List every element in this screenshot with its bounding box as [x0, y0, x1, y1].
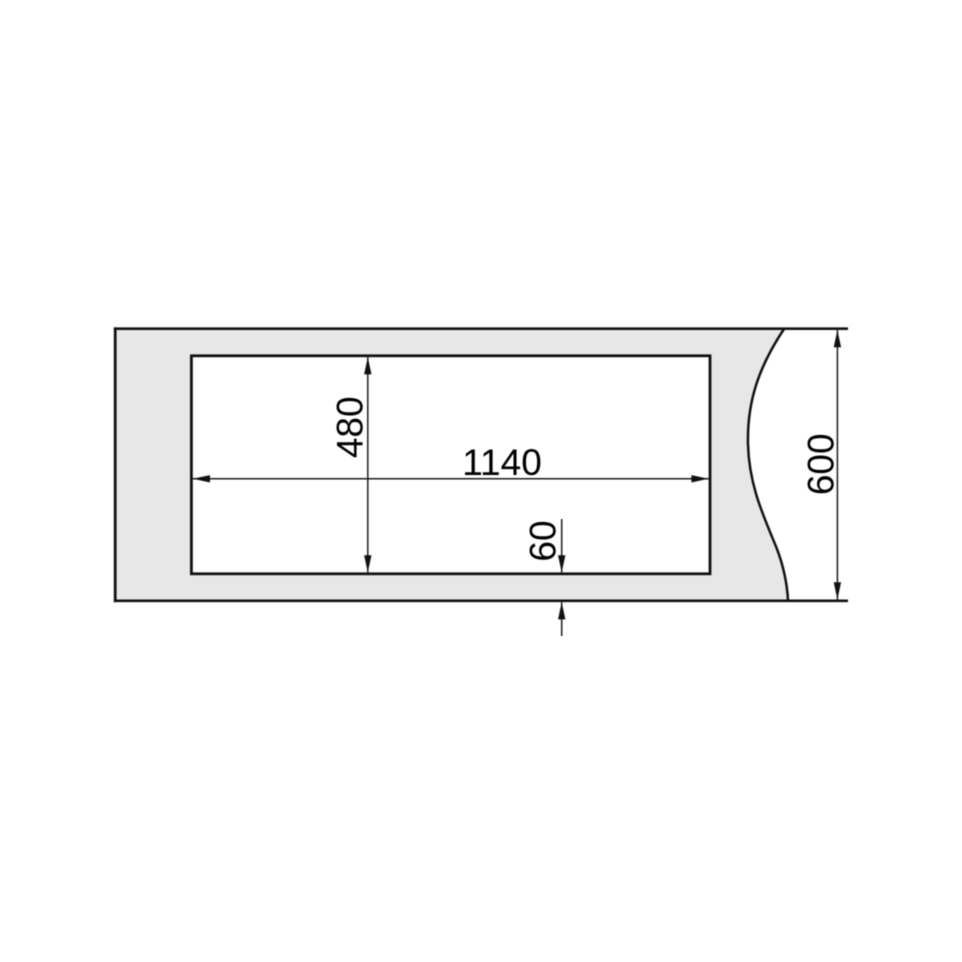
svg-text:60: 60 [523, 520, 564, 561]
svg-text:480: 480 [330, 396, 371, 458]
svg-text:600: 600 [801, 433, 842, 495]
svg-text:1140: 1140 [462, 442, 542, 483]
